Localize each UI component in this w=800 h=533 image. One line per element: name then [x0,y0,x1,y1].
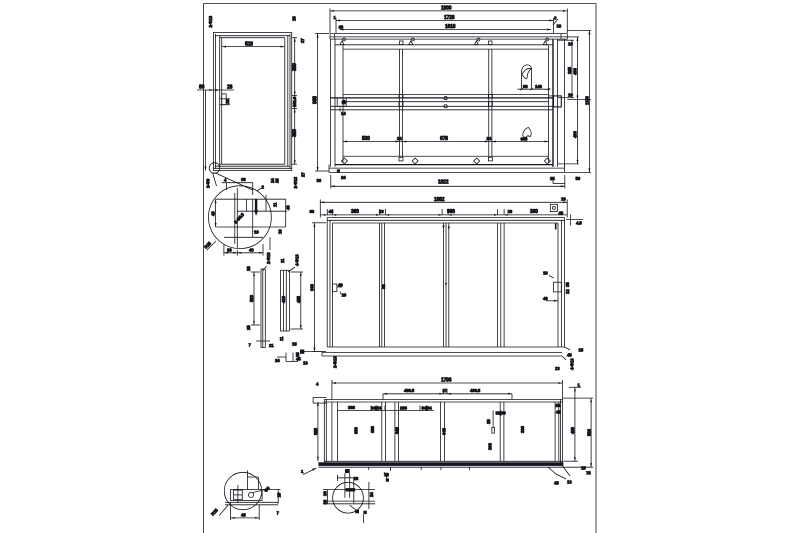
svg-text:75: 75 [586,471,591,476]
svg-text:18: 18 [543,271,548,276]
svg-text:18: 18 [568,93,573,98]
svg-text:409: 409 [570,427,575,434]
svg-text:28: 28 [295,352,300,357]
svg-text:2-Φ13: 2-Φ13 [293,176,298,188]
svg-text:18: 18 [508,209,513,214]
svg-text:398: 398 [348,405,355,410]
svg-text:398: 398 [488,443,493,450]
svg-text:45: 45 [556,410,561,415]
svg-text:623: 623 [313,428,318,435]
svg-text:27: 27 [443,388,448,393]
svg-text:455: 455 [296,296,301,303]
svg-text:968: 968 [309,284,314,291]
svg-text:11: 11 [272,202,277,207]
svg-text:36: 36 [322,491,327,496]
svg-text:13: 13 [555,366,560,371]
svg-text:36: 36 [241,177,246,182]
svg-text:80: 80 [199,85,205,91]
svg-text:27: 27 [300,38,305,43]
svg-text:40: 40 [285,205,290,210]
svg-text:18: 18 [354,476,359,481]
svg-text:18: 18 [322,499,327,504]
svg-text:40: 40 [211,211,216,216]
svg-text:308: 308 [520,426,525,433]
svg-text:350: 350 [292,129,298,137]
svg-text:2-Φ9: 2-Φ9 [206,178,211,188]
svg-text:46: 46 [559,211,564,216]
svg-text:18: 18 [379,209,384,214]
svg-text:35: 35 [556,403,561,408]
svg-text:48: 48 [543,296,548,301]
svg-text:21: 21 [269,343,274,348]
svg-text:968: 968 [312,96,318,104]
svg-text:35: 35 [565,282,570,287]
svg-text:18: 18 [254,230,259,235]
svg-text:360: 360 [351,209,359,215]
svg-text:1728: 1728 [444,15,455,21]
svg-text:140: 140 [535,84,542,89]
svg-text:998: 998 [447,209,455,215]
svg-text:16: 16 [557,24,562,29]
svg-text:678: 678 [440,136,448,142]
svg-text:24: 24 [369,492,374,497]
svg-text:1150: 1150 [585,96,590,105]
svg-text:360: 360 [530,209,538,215]
svg-text:28: 28 [227,85,233,91]
svg-text:648: 648 [441,428,446,435]
svg-text:418: 418 [281,296,286,303]
svg-text:45: 45 [567,353,572,358]
svg-text:1900: 1900 [441,5,452,11]
svg-text:40: 40 [249,247,254,252]
svg-text:45: 45 [329,209,334,214]
svg-text:80: 80 [523,84,528,89]
svg-text:650: 650 [370,426,375,433]
svg-text:4-Φ13: 4-Φ13 [570,358,575,370]
svg-text:46: 46 [339,25,344,30]
svg-text:11: 11 [280,258,285,263]
svg-text:45: 45 [554,481,559,486]
svg-text:518: 518 [245,41,253,47]
svg-text:24: 24 [341,175,346,180]
svg-text:1796: 1796 [441,377,452,383]
svg-text:2-Φ13: 2-Φ13 [333,356,338,368]
svg-text:25: 25 [486,419,491,424]
svg-text:18: 18 [568,42,573,47]
svg-text:12: 12 [565,289,570,294]
svg-text:11: 11 [279,336,284,341]
svg-text:350: 350 [292,63,298,71]
svg-text:32|30: 32|30 [496,411,507,416]
svg-text:490: 490 [573,131,578,138]
svg-text:46: 46 [338,282,343,287]
svg-text:25: 25 [246,325,251,330]
svg-text:1882: 1882 [434,197,445,203]
svg-text:13: 13 [567,480,572,485]
svg-text:523: 523 [586,429,591,436]
svg-text:60: 60 [310,209,315,214]
svg-text:84|84: 84|84 [371,406,382,411]
svg-text:98: 98 [381,284,386,289]
svg-text:490: 490 [573,68,578,75]
svg-text:2-Φ13: 2-Φ13 [208,15,213,27]
svg-text:1616: 1616 [445,24,456,30]
svg-text:24: 24 [487,136,492,141]
svg-text:25: 25 [246,266,251,271]
svg-text:10: 10 [278,229,283,234]
svg-text:101.6: 101.6 [292,96,297,107]
svg-text:4-Φ13: 4-Φ13 [295,254,300,266]
svg-text:24: 24 [397,136,402,141]
svg-text:30: 30 [317,178,322,183]
svg-text:14: 14 [341,111,346,116]
svg-text:325: 325 [567,67,572,74]
svg-text:650: 650 [353,427,358,434]
svg-text:15: 15 [292,342,297,347]
svg-text:15: 15 [292,16,297,21]
svg-text:469.5: 469.5 [470,388,481,393]
svg-text:45: 45 [241,513,246,518]
svg-text:18: 18 [561,197,566,202]
svg-text:469.5: 469.5 [404,388,415,393]
svg-text:15: 15 [579,348,584,353]
svg-text:16: 16 [225,99,230,104]
svg-text:4.5: 4.5 [576,221,582,226]
svg-text:20: 20 [274,178,279,183]
svg-text:298: 298 [400,406,407,411]
svg-text:27: 27 [300,172,305,177]
svg-text:649: 649 [395,427,400,434]
svg-text:1822: 1822 [438,179,449,185]
svg-text:50: 50 [576,176,581,181]
svg-text:84|84: 84|84 [422,406,433,411]
svg-text:20: 20 [227,247,232,252]
svg-text:2-Φ13: 2-Φ13 [266,252,271,264]
svg-text:600: 600 [521,136,528,141]
svg-text:18: 18 [342,293,347,298]
svg-text:500: 500 [362,136,370,142]
svg-text:523: 523 [249,295,254,302]
svg-text:13: 13 [303,361,308,366]
svg-text:15: 15 [277,492,282,497]
svg-text:24: 24 [275,358,280,363]
